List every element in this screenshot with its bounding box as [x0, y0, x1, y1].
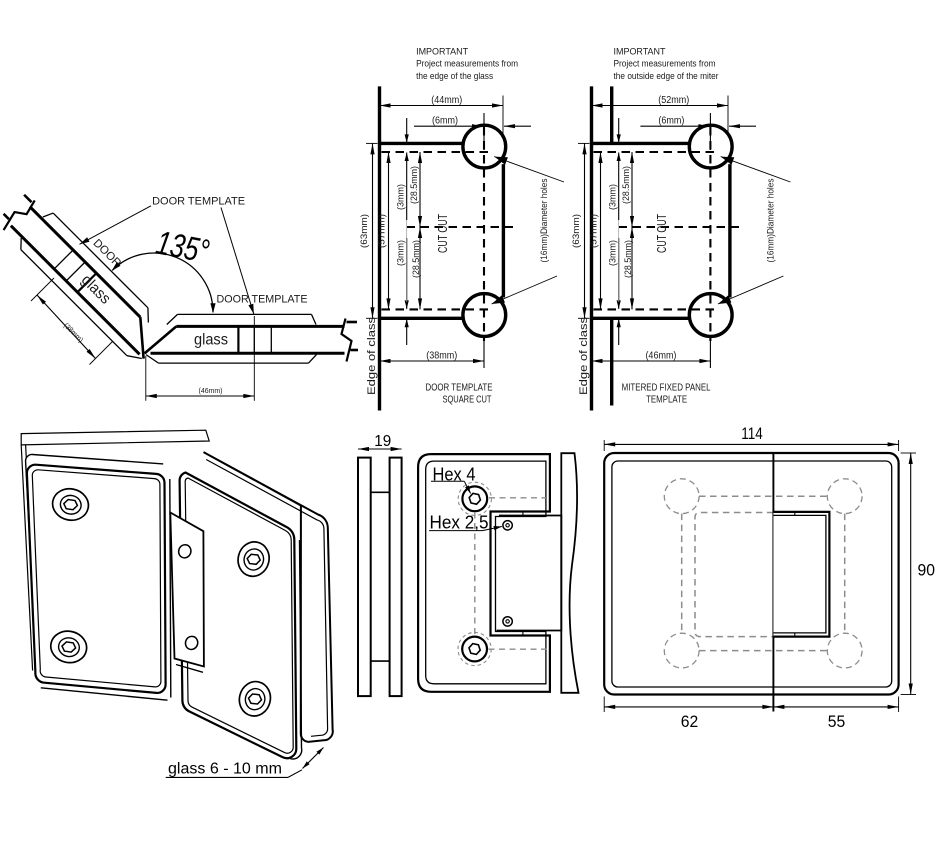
svg-text:TEMPLATE: TEMPLATE — [646, 395, 687, 406]
svg-text:(63mm): (63mm) — [571, 214, 582, 248]
svg-text:(52mm): (52mm) — [658, 95, 689, 106]
svg-text:114: 114 — [741, 425, 763, 443]
svg-text:(16mm)Diameter holes: (16mm)Diameter holes — [539, 178, 549, 263]
svg-text:glass: glass — [194, 332, 228, 349]
svg-text:CUT OUT: CUT OUT — [435, 214, 450, 253]
svg-text:62: 62 — [681, 713, 699, 731]
svg-text:(28.5mm): (28.5mm) — [621, 166, 631, 204]
svg-text:(57mm): (57mm) — [377, 214, 388, 248]
svg-text:90: 90 — [918, 562, 936, 580]
svg-text:IMPORTANT: IMPORTANT — [416, 47, 468, 58]
svg-text:Hex 2,5: Hex 2,5 — [430, 513, 489, 533]
svg-text:55: 55 — [828, 713, 846, 731]
svg-text:(6mm): (6mm) — [658, 116, 684, 127]
svg-text:(3mm): (3mm) — [607, 184, 617, 210]
svg-text:(38mm): (38mm) — [426, 350, 457, 361]
svg-text:(16mm)Diameter holes: (16mm)Diameter holes — [765, 178, 775, 263]
svg-text:the edge of the glass: the edge of the glass — [416, 71, 493, 82]
svg-text:glass 6 - 10 mm: glass 6 - 10 mm — [168, 761, 282, 778]
svg-text:(46mm): (46mm) — [199, 386, 223, 395]
svg-text:the outside edge of the miter: the outside edge of the miter — [614, 71, 720, 82]
svg-text:(3mm): (3mm) — [607, 240, 617, 266]
svg-text:(44mm): (44mm) — [431, 95, 462, 106]
svg-text:Project measurements from: Project measurements from — [614, 59, 716, 70]
svg-text:DOOR TEMPLATE: DOOR TEMPLATE — [217, 293, 308, 305]
svg-text:Edge of class: Edge of class — [578, 317, 590, 395]
svg-text:(28.5mm): (28.5mm) — [409, 166, 419, 204]
svg-text:(57mm): (57mm) — [589, 214, 600, 248]
svg-text:DOOR TEMPLATE: DOOR TEMPLATE — [152, 196, 245, 208]
svg-text:MITERED FIXED PANEL: MITERED FIXED PANEL — [622, 382, 711, 393]
svg-text:(28.5mm): (28.5mm) — [623, 240, 633, 278]
svg-text:(63mm): (63mm) — [359, 214, 370, 248]
svg-text:(6mm): (6mm) — [432, 116, 458, 127]
svg-text:(3mm): (3mm) — [395, 240, 405, 266]
svg-text:IMPORTANT: IMPORTANT — [614, 47, 666, 58]
svg-text:Project measurements from: Project measurements from — [416, 59, 518, 70]
svg-text:Edge of class: Edge of class — [366, 317, 378, 395]
svg-text:(28.5mm): (28.5mm) — [411, 240, 421, 278]
svg-text:DOOR TEMPLATE: DOOR TEMPLATE — [426, 382, 493, 393]
svg-text:19: 19 — [374, 433, 391, 450]
svg-text:(3mm): (3mm) — [395, 184, 405, 210]
svg-text:CUT OUT: CUT OUT — [654, 214, 669, 253]
svg-text:SQUARE CUT: SQUARE CUT — [443, 395, 492, 406]
svg-text:(46mm): (46mm) — [645, 350, 676, 361]
